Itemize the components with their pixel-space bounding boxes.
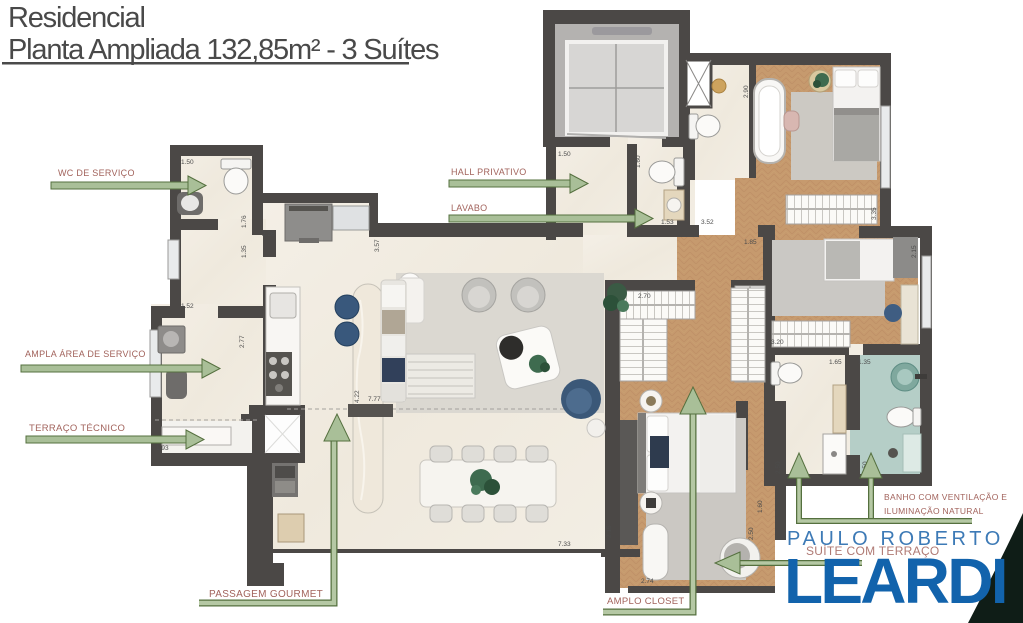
svg-text:2.50: 2.50 (775, 461, 782, 474)
svg-text:1.50: 1.50 (181, 159, 194, 166)
svg-text:2.15: 2.15 (606, 525, 613, 538)
svg-text:3.20: 3.20 (771, 339, 784, 346)
svg-text:3.57: 3.57 (374, 239, 381, 252)
svg-text:1.65: 1.65 (829, 359, 842, 366)
svg-text:7.77: 7.77 (368, 396, 381, 403)
svg-text:4.22: 4.22 (354, 390, 361, 403)
svg-text:3.52: 3.52 (701, 219, 714, 226)
svg-text:1.52: 1.52 (181, 303, 194, 310)
svg-text:2.77: 2.77 (239, 335, 246, 348)
svg-text:1.85: 1.85 (744, 239, 757, 246)
svg-text:LEARDI: LEARDI (784, 545, 1006, 617)
svg-text:LAVABO: LAVABO (451, 203, 487, 213)
svg-text:1.93: 1.93 (156, 445, 169, 452)
svg-text:2.50: 2.50 (748, 527, 755, 540)
svg-text:AMPLO CLOSET: AMPLO CLOSET (607, 596, 685, 607)
svg-text:Planta Ampliada 132,85m² - 3 S: Planta Ampliada 132,85m² - 3 Suítes (8, 34, 439, 66)
svg-text:1.76: 1.76 (241, 215, 248, 228)
svg-text:1.35: 1.35 (241, 245, 248, 258)
svg-text:ILUMINAÇÃO NATURAL: ILUMINAÇÃO NATURAL (884, 506, 984, 516)
svg-text:PASSAGEM GOURMET: PASSAGEM GOURMET (209, 589, 323, 600)
svg-text:WC DE SERVIÇO: WC DE SERVIÇO (58, 168, 135, 178)
svg-text:2.26: 2.26 (262, 231, 275, 238)
svg-text:1.60: 1.60 (757, 500, 764, 513)
svg-text:Residencial: Residencial (8, 2, 145, 34)
svg-text:HALL PRIVATIVO: HALL PRIVATIVO (451, 167, 527, 177)
svg-text:7.33: 7.33 (558, 541, 571, 548)
svg-text:1.35: 1.35 (858, 359, 871, 366)
svg-text:2.74: 2.74 (641, 578, 654, 585)
svg-text:2.15: 2.15 (911, 245, 918, 258)
svg-text:1.50: 1.50 (558, 151, 571, 158)
svg-text:AMPLA ÁREA DE SERVIÇO: AMPLA ÁREA DE SERVIÇO (25, 349, 146, 359)
svg-text:2.90: 2.90 (743, 85, 750, 98)
svg-text:BANHO COM VENTILAÇÃO E: BANHO COM VENTILAÇÃO E (884, 492, 1007, 502)
svg-text:TERRAÇO TÉCNICO: TERRAÇO TÉCNICO (29, 423, 125, 434)
svg-text:2.70: 2.70 (638, 293, 651, 300)
svg-text:1.53: 1.53 (661, 219, 674, 226)
svg-text:1.60: 1.60 (635, 155, 642, 168)
svg-text:3.35: 3.35 (871, 207, 878, 220)
